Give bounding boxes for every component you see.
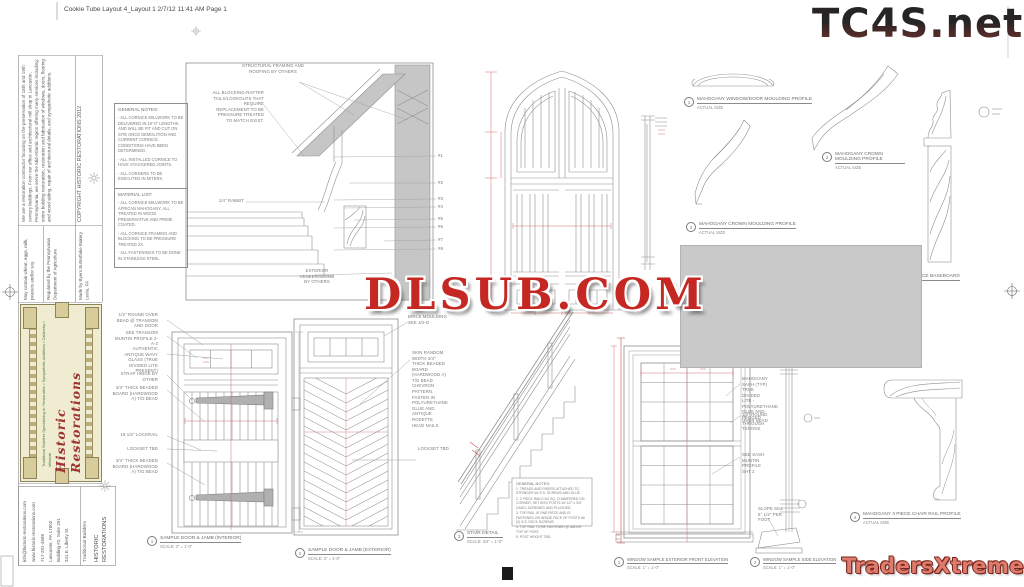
door-int-note-board: 3/4" THICK BEADED BOARD (HARDWOOD A) T/G… [112,385,158,402]
callout-3: #3 [438,196,443,201]
dentil-border-left [29,309,37,477]
material-list-box: MATERIAL LIST: - ALL CORNICE MILLWORK TO… [114,188,188,268]
door-interior-scale: SCALE: 3" = 1'-0" [160,544,241,549]
dentil-border-right [85,309,93,477]
window-side-title: WINDOW SAMPLE SIDE ELEVATION [763,557,836,564]
column-icon [85,307,99,329]
footer-address1: 341 E. Liberty St. [64,488,72,562]
crown-moulding-profile3-drawing [692,112,767,217]
drawing-sheet: Cookie Tube Layout 4_Layout 1 2/7/12 11:… [0,0,1024,587]
door-int-note-board2: 3/4" THICK BEADED BOARD (HARDWOOD A) T/G… [112,458,158,475]
note-item: - ALL FASTENINGS TO BE DONE IN STAINLESS… [118,250,184,261]
note-item: - ALL CORNICE MILLWORK TO BE DELIVERED I… [118,115,184,154]
material-list-title: MATERIAL LIST: [118,192,184,197]
baseboard-profile-drawing [916,84,968,274]
callout-1: #1 [438,153,443,158]
brand-script-text: Historic Restorations [53,313,83,473]
profile2-label: 2 MAHOGANY CROWN MOULDING PROFILE ACTUAL… [822,152,905,170]
door-int-note-bead: 1/2" ROUND OVER BEAD @ TRANSOM AND DOOR [112,312,158,329]
callout-4: #4 [438,204,443,209]
column-icon [23,457,37,479]
note-item: - ALL CORNICE MILLWORK TO BE AFRICAN MAH… [118,200,184,228]
structural-note: STRUCTURAL FRAMING AND ROOFING BY OTHERS [240,63,306,74]
detail-number-bubble: 1 [147,536,157,546]
door-interior-caption: 1 SAMPLE DOOR & JAMB (INTERIOR) SCALE: 3… [147,536,241,549]
stair-note: 5. POST HEIGHT TBD. [516,535,588,539]
door-int-note-hinge: STRAP HINGE BY OTHER [112,371,158,382]
detail-number-bubble: 2 [822,152,832,162]
profile1-scale: ACTUAL SIZE [697,105,812,110]
window-front-caption: 1 WINDOW SAMPLE EXTERIOR FRONT ELEVATION… [614,557,728,570]
stair-notes-title: GENERAL NOTES: [516,481,588,486]
note-item: - ALL INSTALLED CORNICE TO HAVE STAGGERE… [118,157,184,168]
window-note-sill: SLOPE SILL 5° 1/2" PER FOOT [758,506,788,523]
chair-rail-title: MAHOGANY 3 PIECE CHAIR RAIL PROFILE [863,512,961,519]
profile2-scale: ACTUAL SIZE [835,165,905,170]
window-note-bead: 1/2" ROUND OVER BEAD [742,412,770,423]
door-int-note-lockset: LOCKSET TBD [112,446,158,452]
window-note-muntin: SEE SASH MUNTIN PROFILE SHT 2 [742,452,770,474]
stair-note: 3. TOP RAIL IS ONE PIECE AND IS FASTENED… [516,511,588,524]
door-int-note-glass: AUTHENTIC ANTIQUE WAVY GLASS (TRUE DIVID… [112,346,158,374]
tradersxtreme-watermark: TradersXtreme.com [842,554,1024,578]
reference-marker-bubble [976,104,1006,124]
gray-placeholder-block [680,245,922,368]
copyright-notice: COPYRIGHT HISTORIC RESTORATIONS 2012 [77,58,101,222]
column-icon [85,457,99,479]
callout-8: #8 [438,246,443,251]
door-int-note-lockrail: 18 1/2" LOCKRAIL [112,432,158,438]
footer-email: info@historic-restorations.com [22,488,30,562]
door-interior-title: SAMPLE DOOR & JAMB (INTERIOR) [160,536,241,543]
window-front-scale: SCALE: 1" = 1'-0" [627,565,728,570]
footer-tagline: Traditional Builders [83,488,92,562]
chair-rail-profile-drawing [876,368,976,513]
detail-number-bubble: 3 [454,531,464,541]
callout-5: #5 [438,216,443,221]
door-int-note-muntin: SEE TRANSOM MUNTIN PROFILE 2-A-2 [112,330,158,347]
door-ext-note-skin: SKIN RANDOM WIDTH 3/4" THICK BEADED BOAR… [412,350,446,428]
footer-website: www.historic-restorations.com [31,488,39,562]
detail-number-bubble: 2 [750,557,760,567]
tc4s-watermark: TC4S.net [812,1,1023,47]
stair-note: 1. TREADS AND RISERS ATTACHED TO STRINGE… [516,487,588,496]
window-door-moulding-profile-drawing [688,64,778,94]
detail-number-bubble: 1 [684,97,694,107]
callout-7: #7 [438,237,443,242]
stair-caption: 3 STAIR DETAIL SCALE: 3/4" = 1'-0" [454,531,503,544]
detail-number-bubble: 3 [686,222,696,232]
profile3-label: 3 MAHOGANY CROWN MOULDING PROFILE ACTUAL… [686,222,796,235]
door-exterior-caption: 2 SAMPLE DOOR & JAMB (EXTERIOR) SCALE: 3… [295,548,391,561]
profile1-title: MAHOGANY WINDOW/DOOR MOULDING PROFILE [697,97,812,104]
exterior-door-elevation-drawing [290,312,462,547]
crown-moulding-profile2-drawing [808,60,903,155]
window-side-caption: 2 WINDOW SAMPLE SIDE ELEVATION SCALE: 1"… [750,557,836,570]
detail-number-bubble: 2 [295,548,305,558]
callout-2: #2 [438,180,443,185]
general-notes-box: GENERAL NOTES: - ALL CORNICE MILLWORK TO… [114,103,188,189]
note-item: - ALL CORNERS TO BE EXECUTED IN MITERS. [118,171,184,182]
profile1-label: 1 MAHOGANY WINDOW/DOOR MOULDING PROFILE … [684,97,812,110]
footer-phone: 717-291-4688 [40,488,48,562]
stair-title: STAIR DETAIL [467,531,503,538]
stair-scale: SCALE: 3/4" = 1'-0" [467,539,503,544]
chair-rail-label: 4 MAHOGANY 3 PIECE CHAIR RAIL PROFILE AC… [850,512,961,525]
window-note-sash: MAHOGANY SASH (TYP) TRUE DIVIDED LITE - … [742,376,770,432]
brand-tagline-text: Traditional Builders Specializing in: Re… [41,319,53,467]
profile3-title: MAHOGANY CROWN MOULDING PROFILE [699,222,796,229]
window-front-elevation-drawing [612,338,757,566]
dlsub-watermark: DLSUB.COM [364,270,707,320]
veneer-note: EXTERIOR VENEER/SIDING BY OTHERS [296,268,338,285]
profile3-scale: ACTUAL SIZE [699,230,796,235]
detail-number-bubble: 4 [850,512,860,522]
company-description: We are a restoration contractor focusing… [21,58,73,222]
chair-rail-scale: ACTUAL SIZE [863,520,961,525]
window-side-scale: SCALE: 1" = 1'-0" [763,565,836,570]
stair-notes-box: GENERAL NOTES: 1. TREADS AND RISERS ATTA… [516,481,588,540]
note-item: - ALL CORNICE FRAMING AND BLOCKING TO BE… [118,231,184,248]
blocking-note: ALL BLOCKING-RAFTER TAILS/LOOKOUTS THAT … [212,90,264,123]
made-by-text: Made by Byers Butterflake Bakery Leola, … [78,228,100,300]
door-exterior-scale: SCALE: 3" = 1'-0" [308,556,391,561]
window-front-title: WINDOW SAMPLE EXTERIOR FRONT ELEVATION [627,557,728,564]
regulated-text: Regulated by the Pennsylvania Department… [46,228,73,300]
historic-restorations-label: Historic Restorations Traditional Builde… [20,304,102,482]
stair-note: 2. 2 PIECE RAILS 5/4 SQ. CHAMFERED ON CO… [516,497,588,510]
footer-city: Lancaster, PA 17602 [48,488,56,562]
column-icon [23,307,37,329]
detail-number-bubble: 1 [614,557,624,567]
profile2-title: MAHOGANY CROWN MOULDING PROFILE [835,152,905,164]
footer-address2: Building #2, Suite 201 [56,488,64,562]
allergen-text: May contain wheat, eggs, milk, peanuts a… [23,228,41,300]
footer-company: HISTORIC RESTORATIONS [93,488,104,562]
stair-note: 4. TOP RAIL TO BE FASTENED @ ABOVE TOP O… [516,525,588,534]
general-notes-title: GENERAL NOTES: [118,107,184,112]
callout-6: #6 [438,224,443,229]
page-header: Cookie Tube Layout 4_Layout 1 2/7/12 11:… [64,6,227,13]
rabbit-note: 1/4" RABBIT [204,198,244,204]
door-exterior-title: SAMPLE DOOR & JAMB (EXTERIOR) [308,548,391,555]
